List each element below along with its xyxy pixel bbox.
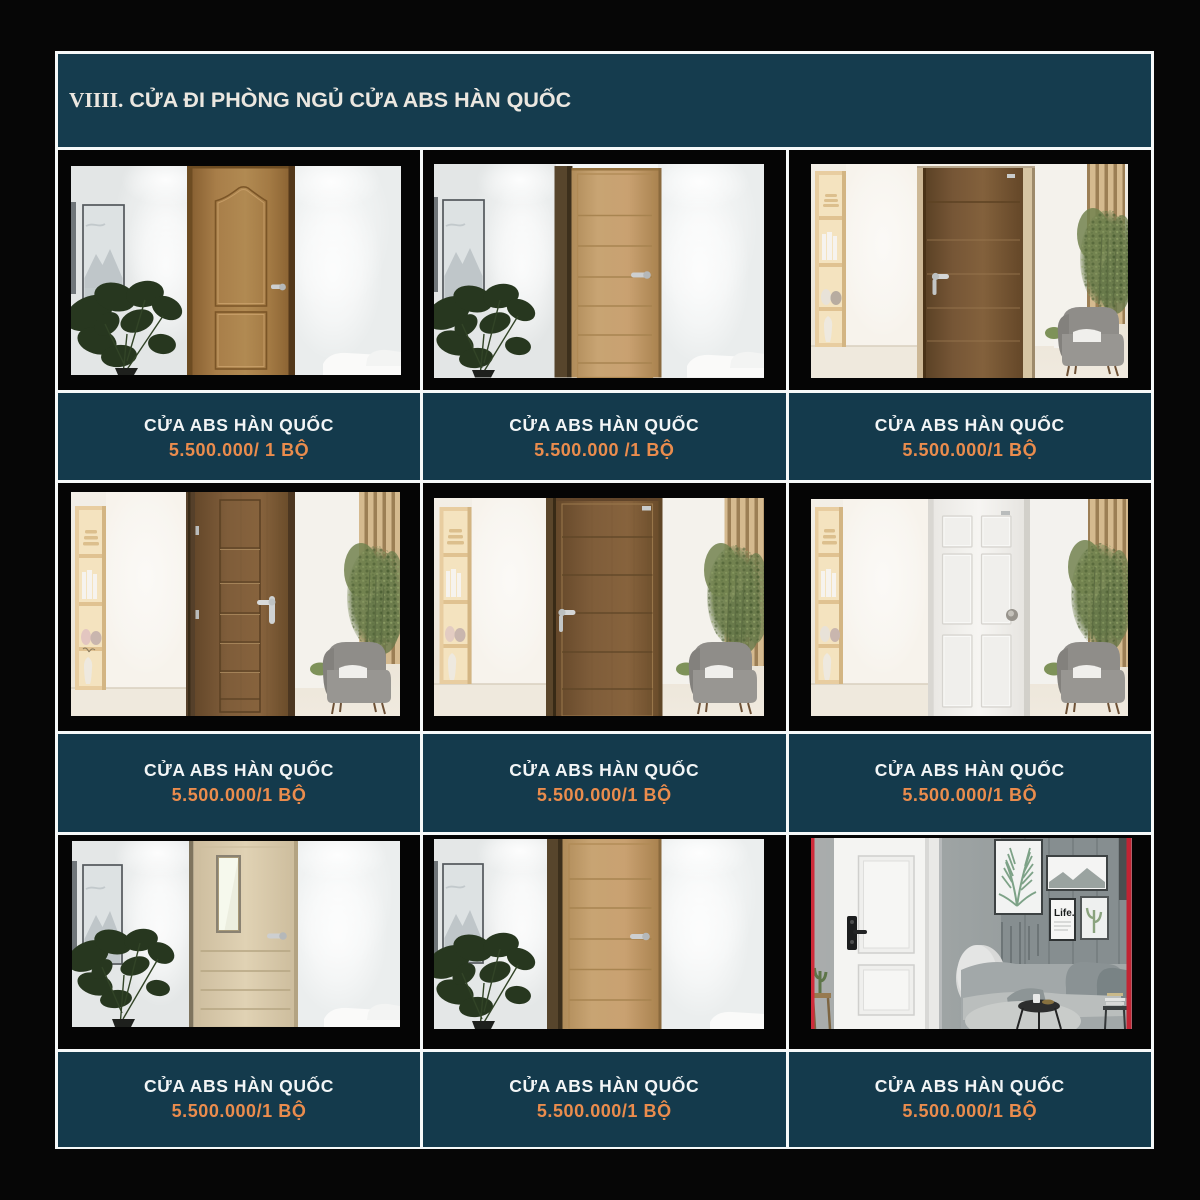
svg-text:Life.: Life. <box>1054 908 1075 919</box>
